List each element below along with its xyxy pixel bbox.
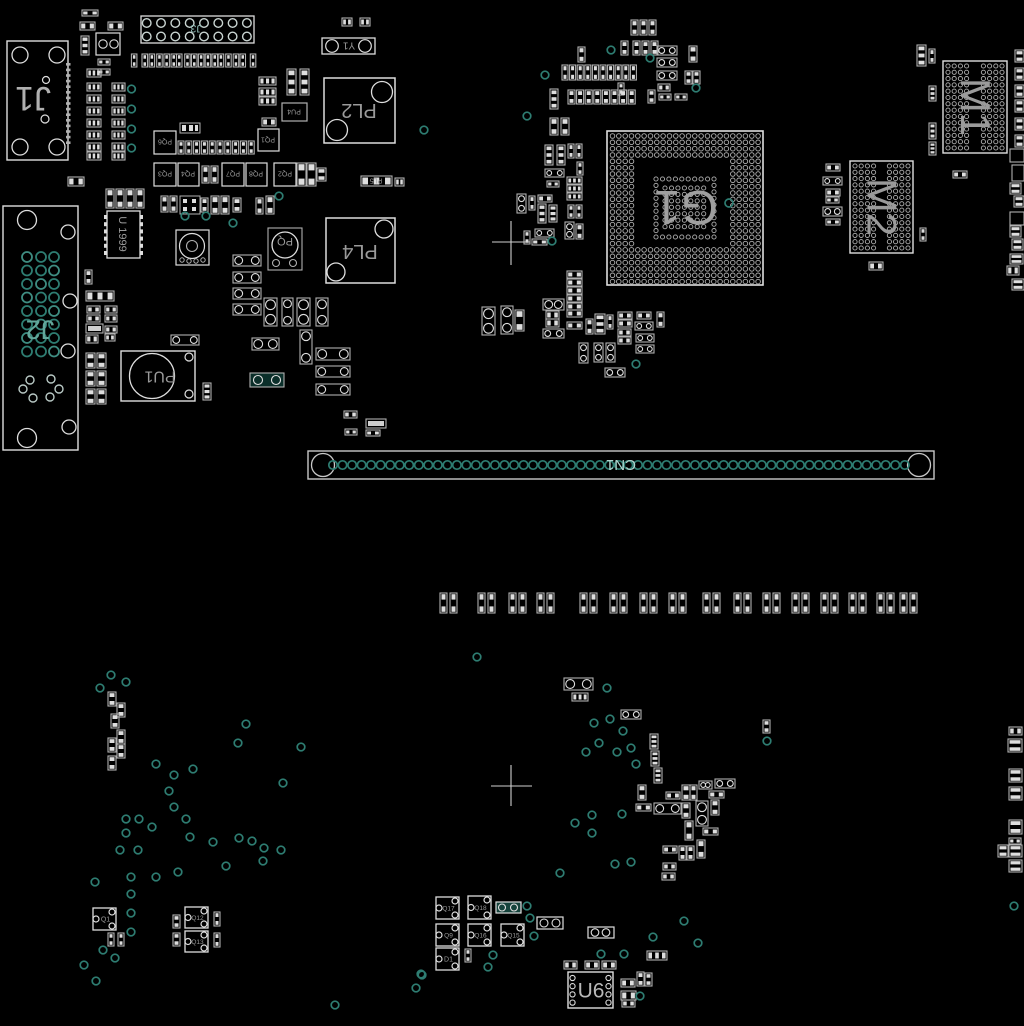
svg-text:Q12: Q12 <box>191 915 204 922</box>
svg-text:PQ1: PQ1 <box>261 136 275 143</box>
svg-text:PL4: PL4 <box>342 240 378 262</box>
svg-text:PU4: PU4 <box>287 108 301 115</box>
svg-text:PQ: PQ <box>277 235 293 247</box>
svg-text:PQ3: PQ3 <box>158 170 172 177</box>
svg-text:U6: U6 <box>578 979 605 1002</box>
svg-text:CN1: CN1 <box>606 456 636 473</box>
svg-text:Q16: Q16 <box>474 933 487 940</box>
svg-text:Q1: Q1 <box>101 917 110 924</box>
svg-text:PQ6: PQ6 <box>158 138 172 145</box>
svg-text:J3: J3 <box>190 22 202 34</box>
svg-text:M2: M2 <box>859 178 906 236</box>
svg-text:Q9: Q9 <box>444 933 453 940</box>
svg-text:D1: D1 <box>444 957 453 964</box>
svg-text:PU1: PU1 <box>144 367 175 384</box>
svg-text:Q13: Q13 <box>191 939 204 946</box>
svg-text:Q17: Q17 <box>442 906 455 913</box>
svg-text:Q18: Q18 <box>474 905 487 912</box>
svg-text:PQ4: PQ4 <box>181 170 195 177</box>
svg-text:G1: G1 <box>654 180 718 233</box>
svg-text:PQ2: PQ2 <box>278 170 292 177</box>
svg-text:J1: J1 <box>15 79 51 117</box>
svg-text:M1: M1 <box>952 78 999 136</box>
svg-text:J2: J2 <box>26 315 55 345</box>
svg-text:Y1: Y1 <box>342 40 355 51</box>
svg-text:PQ7: PQ7 <box>226 170 240 177</box>
svg-text:PQ8: PQ8 <box>249 170 263 177</box>
svg-text:Q15: Q15 <box>507 933 520 940</box>
svg-text:PL5: PL5 <box>370 177 383 184</box>
svg-text:PL2: PL2 <box>341 99 377 121</box>
svg-text:U 1999: U 1999 <box>116 216 128 251</box>
